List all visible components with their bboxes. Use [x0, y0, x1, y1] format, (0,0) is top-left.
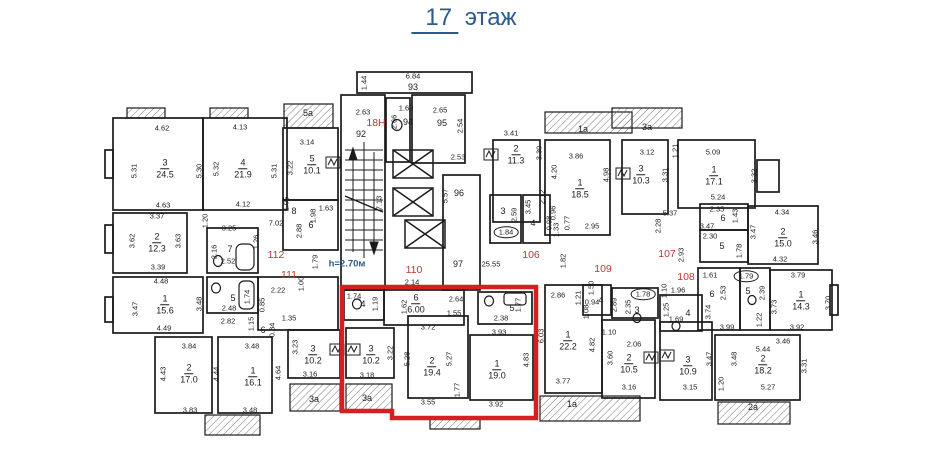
dimension-label: 2.88 [295, 224, 303, 239]
room-label: 5a [301, 103, 315, 121]
dimension-label: 1.10 [602, 328, 617, 336]
dimension-label: 1.74 [243, 290, 251, 305]
dimension-label: 4.82 [588, 338, 596, 353]
dimension-label: 2.22 [271, 286, 286, 294]
room-label: 6 [306, 215, 315, 233]
dimension-label: 5.27 [761, 383, 776, 391]
room-label: 218.2 [754, 348, 772, 375]
room-label: 5 [717, 236, 726, 254]
dimension-label: 1.15 [247, 317, 255, 332]
dimension-label: 3.77 [556, 377, 571, 385]
dimension-label: 3.62 [128, 234, 136, 249]
dimension-label: 4.48 [154, 277, 169, 285]
dimension-label: 1.20 [201, 214, 209, 229]
dimension-label: 4.49 [157, 324, 172, 332]
dimension-label: 5.27 [445, 352, 453, 367]
dimension-label: 2.66 [390, 115, 398, 130]
dimension-label: 2.64 [449, 295, 464, 303]
dimension-label: 3.99 [720, 323, 735, 331]
dimension-label: 2.28 [654, 219, 662, 234]
dimension-label: 7.02 [269, 219, 284, 227]
dimension-label: 2.59 [510, 208, 518, 223]
dimension-label: 5.31 [270, 164, 278, 179]
dimension-label: 3.47 [749, 225, 757, 240]
apartment-number-label: 111 [281, 270, 297, 281]
dimension-label: 3.60 [606, 351, 614, 366]
dimension-label: 5.37 [663, 209, 678, 217]
dimension-label: 2.39 [758, 286, 766, 301]
dimension-label: 3.73 [770, 300, 778, 315]
room-label: 310.2 [362, 338, 380, 365]
dimension-label: 3.47 [705, 352, 713, 367]
room-label: 215.0 [774, 221, 792, 248]
room-label: 6 [258, 320, 267, 338]
room-label: 2a [746, 397, 760, 415]
room-label: 4 [683, 303, 692, 321]
dimension-label: 1.84 [494, 226, 519, 238]
dimension-label: 2.53 [719, 286, 727, 301]
dimension-label: 2.54 [456, 119, 464, 134]
room-label: 94 [401, 112, 415, 130]
dimension-label: 1.35 [282, 314, 297, 322]
dimension-label: 3.31 [800, 359, 808, 374]
dimension-label: 3.41 [504, 129, 519, 137]
room-label: 421.9 [234, 152, 252, 179]
dimension-label: 3.84 [182, 342, 197, 350]
room-label: 7 [225, 239, 234, 257]
dimension-label: 3.22 [286, 161, 294, 176]
dimension-label: 1.63 [319, 204, 334, 212]
room-label: 310.9 [679, 349, 697, 376]
dimension-label: 5.28 [403, 352, 411, 367]
dimension-label: 3.48 [195, 297, 203, 312]
dimension-label: 3.46 [776, 337, 791, 345]
dimension-label: 4.64 [274, 366, 282, 381]
dimension-label: 4.44 [212, 367, 220, 382]
dimension-label: 3.25 [222, 224, 237, 232]
dimension-label: 2.93 [677, 248, 685, 263]
dimension-label: 1.10 [660, 284, 668, 299]
room-label: 324.5 [156, 152, 174, 179]
dimension-label: 3.74 [704, 305, 712, 320]
room-label: 5 [228, 288, 237, 306]
room-label: 3a [307, 389, 321, 407]
dimension-label: 1.78 [631, 288, 656, 300]
room-label: 3a [360, 388, 374, 406]
page-title: 17 этаж [411, 4, 516, 32]
dimension-label: 1.33 [552, 223, 560, 238]
dimension-label: 4.98 [602, 168, 610, 183]
dimension-label: 1.50 [587, 281, 595, 296]
floor-word: этаж [465, 4, 517, 31]
dimension-label: 4.63 [156, 201, 171, 209]
room-label: 8 [289, 201, 298, 219]
dimension-label: 2.82 [221, 317, 236, 325]
dimension-label: 3.55 [421, 398, 436, 406]
dimension-label: 2.35 [624, 300, 632, 315]
dimension-label: 5.31 [130, 164, 138, 179]
apartment-number-label: 108 [677, 272, 695, 283]
room-label: 96 [452, 183, 466, 201]
dimension-label: 3.22 [386, 346, 394, 361]
dimension-label: 1.43 [731, 209, 739, 224]
dimension-label: 3.12 [640, 148, 655, 156]
ceiling-height-note: h=2.70м [329, 259, 366, 270]
room-label: 1a [565, 394, 579, 412]
room-label: 310.3 [632, 158, 650, 185]
room-label: 117.1 [705, 159, 723, 186]
dimension-label: 1.79 [734, 270, 759, 282]
apartment-number-label: 109 [594, 264, 612, 275]
room-label: 122.2 [559, 324, 577, 351]
dimension-label: 3.47 [700, 222, 715, 230]
dimension-label: 4.83 [522, 353, 530, 368]
dimension-label: 3.48 [730, 352, 738, 367]
dimension-label: 1.69 [399, 104, 414, 112]
dimension-label: 1.21 [671, 144, 679, 159]
dimension-label: 5.57 [441, 189, 449, 204]
dimension-label: 5.09 [706, 148, 721, 156]
dimension-label: 1.79 [311, 255, 319, 270]
dimension-label: 6.03 [537, 329, 545, 344]
room-label: 119.0 [488, 353, 506, 380]
dimension-label: 1.26 [252, 235, 260, 250]
apartment-number-label: 110 [406, 265, 423, 276]
dimension-label: 4.62 [155, 124, 170, 132]
room-label: 114.3 [792, 284, 810, 311]
dimension-label: 5.30 [195, 164, 203, 179]
room-label: 93 [406, 77, 420, 95]
dimension-label: 5.32 [212, 162, 220, 177]
dimension-label: 2.14 [405, 278, 420, 286]
apartment-number-label: 106 [522, 250, 540, 261]
dimension-label: 3.79 [791, 271, 806, 279]
dimension-label: 2.38 [494, 314, 509, 322]
dimension-label: 1.77 [453, 383, 461, 398]
dimension-label: 3.39 [151, 263, 166, 271]
dimension-label: 3.48 [245, 342, 260, 350]
dimension-label: 3.32 [750, 169, 758, 184]
floor-number: 17 [411, 4, 458, 34]
dimension-label: 1.08 [582, 305, 590, 320]
dimension-label: 3.23 [291, 340, 299, 355]
dimension-label: 1.22 [755, 313, 763, 328]
dimension-label: 1.69 [669, 315, 684, 323]
dimension-label: 1.19 [371, 297, 379, 312]
apartment-number-label: 107 [658, 249, 676, 260]
dimension-label: 3.47 [131, 302, 139, 317]
dimension-label: 4.34 [775, 208, 790, 216]
dimension-label: 1.21 [574, 291, 582, 306]
dimension-label: 2.53 [451, 153, 466, 161]
labels-layer: 4.624.135.315.305.325.313.224.634.121.05… [0, 0, 928, 450]
apartment-number-label: 18Н [366, 118, 385, 129]
room-label: 5 [743, 281, 752, 299]
dimension-label: 3.15 [683, 383, 698, 391]
dimension-label: 2.16 [210, 245, 218, 260]
dimension-label: 2.52 [221, 257, 236, 265]
dimension-label: 3.16 [622, 383, 637, 391]
room-label: 310.2 [304, 338, 322, 365]
dimension-label: 2.12 [538, 190, 546, 205]
room-label: 115.6 [156, 288, 174, 315]
dimension-label: 3.48 [243, 406, 258, 414]
dimension-label: 3.92 [489, 400, 504, 408]
dimension-label: 3.83 [183, 406, 198, 414]
dimension-label: 1.55 [447, 309, 462, 317]
room-label: 118.5 [571, 172, 589, 199]
dimension-label: 3.86 [569, 152, 584, 160]
dimension-label: 4.12 [236, 200, 251, 208]
dimension-label: 1.44 [360, 76, 368, 91]
room-label: 510.1 [303, 148, 321, 175]
dimension-label: 2.63 [356, 108, 371, 116]
dimension-label: 1.00 [297, 277, 305, 292]
room-label: 3a [640, 117, 654, 135]
dimension-label: 0.85 [258, 298, 266, 313]
dimension-label: 4.13 [233, 123, 248, 131]
dimension-label: 3.92 [790, 323, 805, 331]
dimension-label: 4.20 [550, 165, 558, 180]
floor-plan: 4.624.135.315.305.325.313.224.634.121.05… [0, 0, 928, 450]
room-label: 6 [707, 284, 716, 302]
dimension-label: 7.13 [375, 196, 383, 211]
room-label: 3 [632, 300, 641, 318]
room-label: 116.1 [244, 360, 262, 387]
dimension-label: 1.96 [671, 286, 686, 294]
room-label: 217.0 [180, 357, 198, 384]
dimension-label: 1.20 [717, 377, 725, 392]
dimension-label: 1.61 [703, 271, 718, 279]
dimension-label: 3.93 [492, 328, 507, 336]
dimension-label: 3.72 [421, 323, 436, 331]
room-label: 4 [596, 290, 605, 308]
room-label: 212.3 [148, 226, 166, 253]
dimension-label: 3.14 [300, 138, 315, 146]
room-label: 210.5 [620, 347, 638, 374]
dimension-label: 3.70 [824, 296, 832, 311]
dimension-label: 2.89 [610, 298, 618, 313]
room-label: 97 [451, 254, 465, 272]
dimension-label: 3.16 [303, 370, 318, 378]
dimension-label: 3.31 [661, 168, 669, 183]
dimension-label: 1.82 [559, 254, 567, 269]
dimension-label: 2.86 [551, 291, 566, 299]
room-label: 66.00 [407, 287, 425, 314]
room-label: 3 [498, 201, 507, 219]
dimension-label: 3.63 [174, 234, 182, 249]
dimension-label: 2.30 [703, 232, 718, 240]
room-label: 219.4 [423, 350, 441, 377]
dimension-label: 3.18 [360, 371, 375, 379]
dimension-label: 5.24 [711, 193, 726, 201]
dimension-label: 2.95 [585, 222, 600, 230]
dimension-label: 1.78 [735, 244, 743, 259]
dimension-label: 3.46 [811, 230, 819, 245]
apartment-number-label: 112 [268, 250, 285, 261]
room-label: 1a [576, 119, 590, 137]
dimension-label: 25.55 [482, 260, 501, 268]
room-label: 6 [718, 208, 727, 226]
dimension-label: 3.37 [150, 212, 165, 220]
room-label: 4 [528, 213, 537, 231]
room-label: 211.3 [508, 138, 525, 165]
dimension-label: 4.43 [159, 367, 167, 382]
dimension-label: 0.84 [268, 323, 276, 338]
room-label: 95 [435, 113, 449, 131]
dimension-label: 4.32 [773, 255, 788, 263]
room-label: 4 [358, 294, 367, 312]
dimension-label: 3.30 [535, 146, 543, 161]
room-label: 5 [507, 298, 516, 316]
dimension-label: 0.77 [563, 216, 571, 231]
dimension-label: 3.45 [524, 200, 532, 215]
